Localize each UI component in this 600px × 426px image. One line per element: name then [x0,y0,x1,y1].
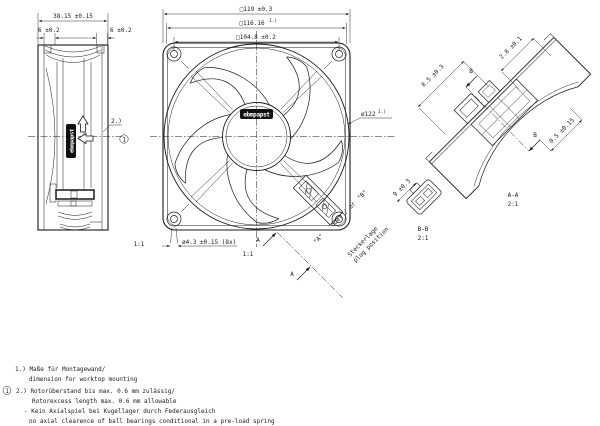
plug-variant-b-label: "B" [356,189,369,202]
section-a-label-1: A [256,237,260,244]
terminal-block [316,198,336,218]
impeller-blades [163,54,342,231]
dim-impeller-ref-sup: 1.) [378,109,386,115]
hole [336,51,343,58]
bearing-tube [58,201,92,206]
section-aa-scale: 2:1 [508,201,519,208]
strut [191,71,233,113]
spring-washer [58,212,92,216]
impeller-arc [45,46,101,52]
section-aa-view: B B 8.5 ±0.3 2.8 ±0.1 0.5 ±0.15 A-A 2:1 [416,24,591,208]
hub-logo-text: ebmpapst [243,112,270,119]
balloon-1: 1 [122,137,126,144]
bearing-center-2 [71,201,76,206]
spring-washer [58,216,92,220]
section-a-trace [277,232,343,298]
blade-edge [240,164,279,225]
hole [171,51,178,58]
ext-line [419,108,445,134]
plug-inner [411,184,436,209]
blade-edge [285,141,342,164]
dim-corner-ref-sup: 1.) [269,18,277,24]
section-a-label-2: A [290,271,294,278]
dim-bb-width-label: 9 ±0.3 [392,178,413,199]
hole [171,216,178,223]
section-aa-title: A-A [508,192,519,199]
blade-profile-arc [46,68,55,204]
dim-aa-lip-label: 0.5 ±0.15 [548,117,576,145]
plug-variant-a-label: "A" [312,233,325,246]
airflow-arrow-icon [78,116,88,132]
fan-technical-drawing: ebmpapst 2.) 1 1:1 38.15 ±0.15 6 ±0.2 6 … [0,0,600,426]
note-ref-label: 2.) [111,118,122,125]
plug-pin [423,189,432,198]
note-ref2-en: Rotorexcess length max. 0.6 mm allowable [32,398,177,405]
blade-edge [190,65,250,117]
spring-washer [60,224,90,227]
note-ref1-de: 1.) Maße für Montagewand/ [15,366,106,373]
flange-ends [429,37,590,198]
blade-edge [205,56,273,111]
note-ref-leader [103,125,110,132]
section-a-arrow [297,267,310,280]
section-b-arrow [529,140,540,151]
impeller-arc [45,50,101,57]
dim-frame-label: □119 ±0.3 [240,6,273,13]
side-logo: ebmpapst [66,124,76,158]
notes-block: 1.) Maße für Montagewand/ dimension for … [3,366,275,425]
terminal-screw [321,203,328,210]
dim-holes-pitch-label: □104.8 ±0.2 [236,34,276,41]
dim-aa-plug-label: 2.8 ±0.1 [498,35,524,61]
note3-de: - Kein Axialspiel bei Kugellager durch F… [24,408,216,415]
note-ref1-en: dimension for worktop mounting [29,376,138,383]
side-logo-text: ebmpapst [70,129,76,153]
corner-rib [181,61,189,69]
dim-mounting-holes-label: ø4.3 ±0.15 (8x) [182,239,236,246]
plug-latch [410,183,421,194]
section-bb-view: 9 ±0.3 B-B 2:1 [392,175,443,242]
ext-line [464,62,489,87]
dim-flange-front-label: 6 ±0.2 [38,27,60,34]
section-a-arrow [263,233,276,246]
bearing-center [71,191,77,198]
blade-edge [269,57,308,118]
strut [279,71,321,113]
section-bb-title: B-B [418,226,429,233]
blade-edge [284,67,320,142]
impeller-dia-leader [348,118,392,124]
scale-label-side: 1:1 [134,241,145,248]
terminal-block [299,181,319,201]
ext-line [171,228,173,243]
note3-en: no axial clearence of ball bearings cond… [29,418,275,425]
ext-line [534,39,551,56]
plug-pin [416,196,425,205]
scale-label-front: 1:1 [243,251,254,258]
section-b-label-2: B [533,132,537,139]
dim-depth-label: 38.15 ±0.15 [53,13,93,20]
section-bb-scale: 2:1 [418,235,429,242]
plug-outline [406,179,443,216]
bracket-tab [50,184,56,202]
dim-aa-depth-label: 8.5 ±0.3 [420,63,446,89]
corner-rib [181,204,189,212]
section-b-arrow [466,76,477,87]
dim-corner-label: □116.16 [239,20,265,27]
dim-impeller-label: ø122 [361,111,376,118]
notes-balloon: 1 [5,388,9,395]
plug-position-labels: Steckerlage plug position [346,220,390,264]
side-view: ebmpapst 2.) 1 1:1 38.15 ±0.15 6 ±0.2 6 … [28,13,145,248]
impeller-arc [46,55,100,63]
boss [167,212,181,226]
corner-rib [324,61,332,69]
front-view: ebmpapst □119 ±0.3 □116.16 1.) □104.8 ±0… [150,6,396,298]
dim-flange-rear-label: 6 ±0.2 [110,27,132,34]
plug-socket [454,93,484,123]
note-ref2-de: 2.) Rotorüberstand bis max. 0.6 mm zuläs… [16,388,175,395]
